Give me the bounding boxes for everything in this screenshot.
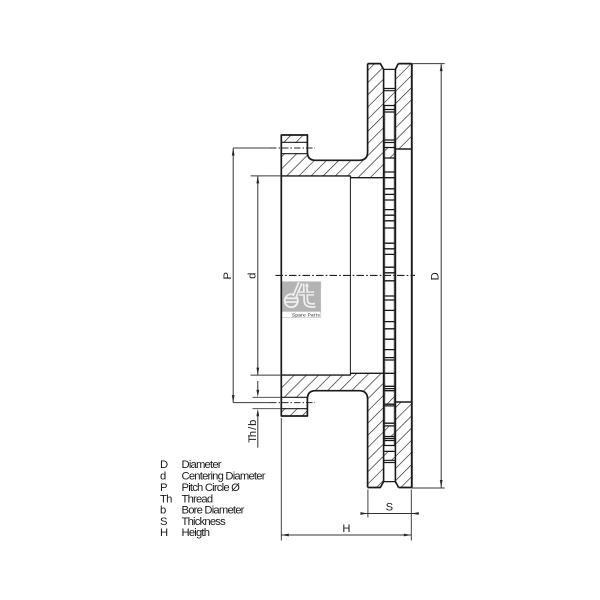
svg-text:P: P [160, 482, 167, 494]
svg-text:P: P [222, 272, 234, 279]
svg-text:Th: Th [160, 494, 172, 506]
svg-text:H: H [342, 523, 350, 535]
svg-text:Th / b: Th / b [247, 420, 259, 443]
svg-text:H: H [160, 527, 168, 539]
svg-text:d: d [160, 471, 166, 483]
svg-text:Bore Diameter: Bore Diameter [182, 505, 245, 517]
svg-text:Spare Parts: Spare Parts [292, 312, 320, 317]
svg-text:Diameter: Diameter [182, 459, 222, 471]
svg-text:S: S [160, 516, 167, 528]
svg-text:d: d [247, 273, 259, 279]
svg-text:D: D [430, 272, 442, 280]
svg-text:b: b [160, 505, 166, 517]
svg-text:Thickness: Thickness [182, 516, 227, 528]
svg-text:D: D [160, 459, 168, 471]
svg-text:Thread: Thread [182, 494, 213, 506]
svg-text:Heigth: Heigth [182, 527, 210, 539]
svg-text:Centering Diameter: Centering Diameter [182, 471, 266, 483]
svg-text:S: S [386, 502, 393, 514]
svg-text:Pitch Circle Ø: Pitch Circle Ø [182, 482, 241, 494]
